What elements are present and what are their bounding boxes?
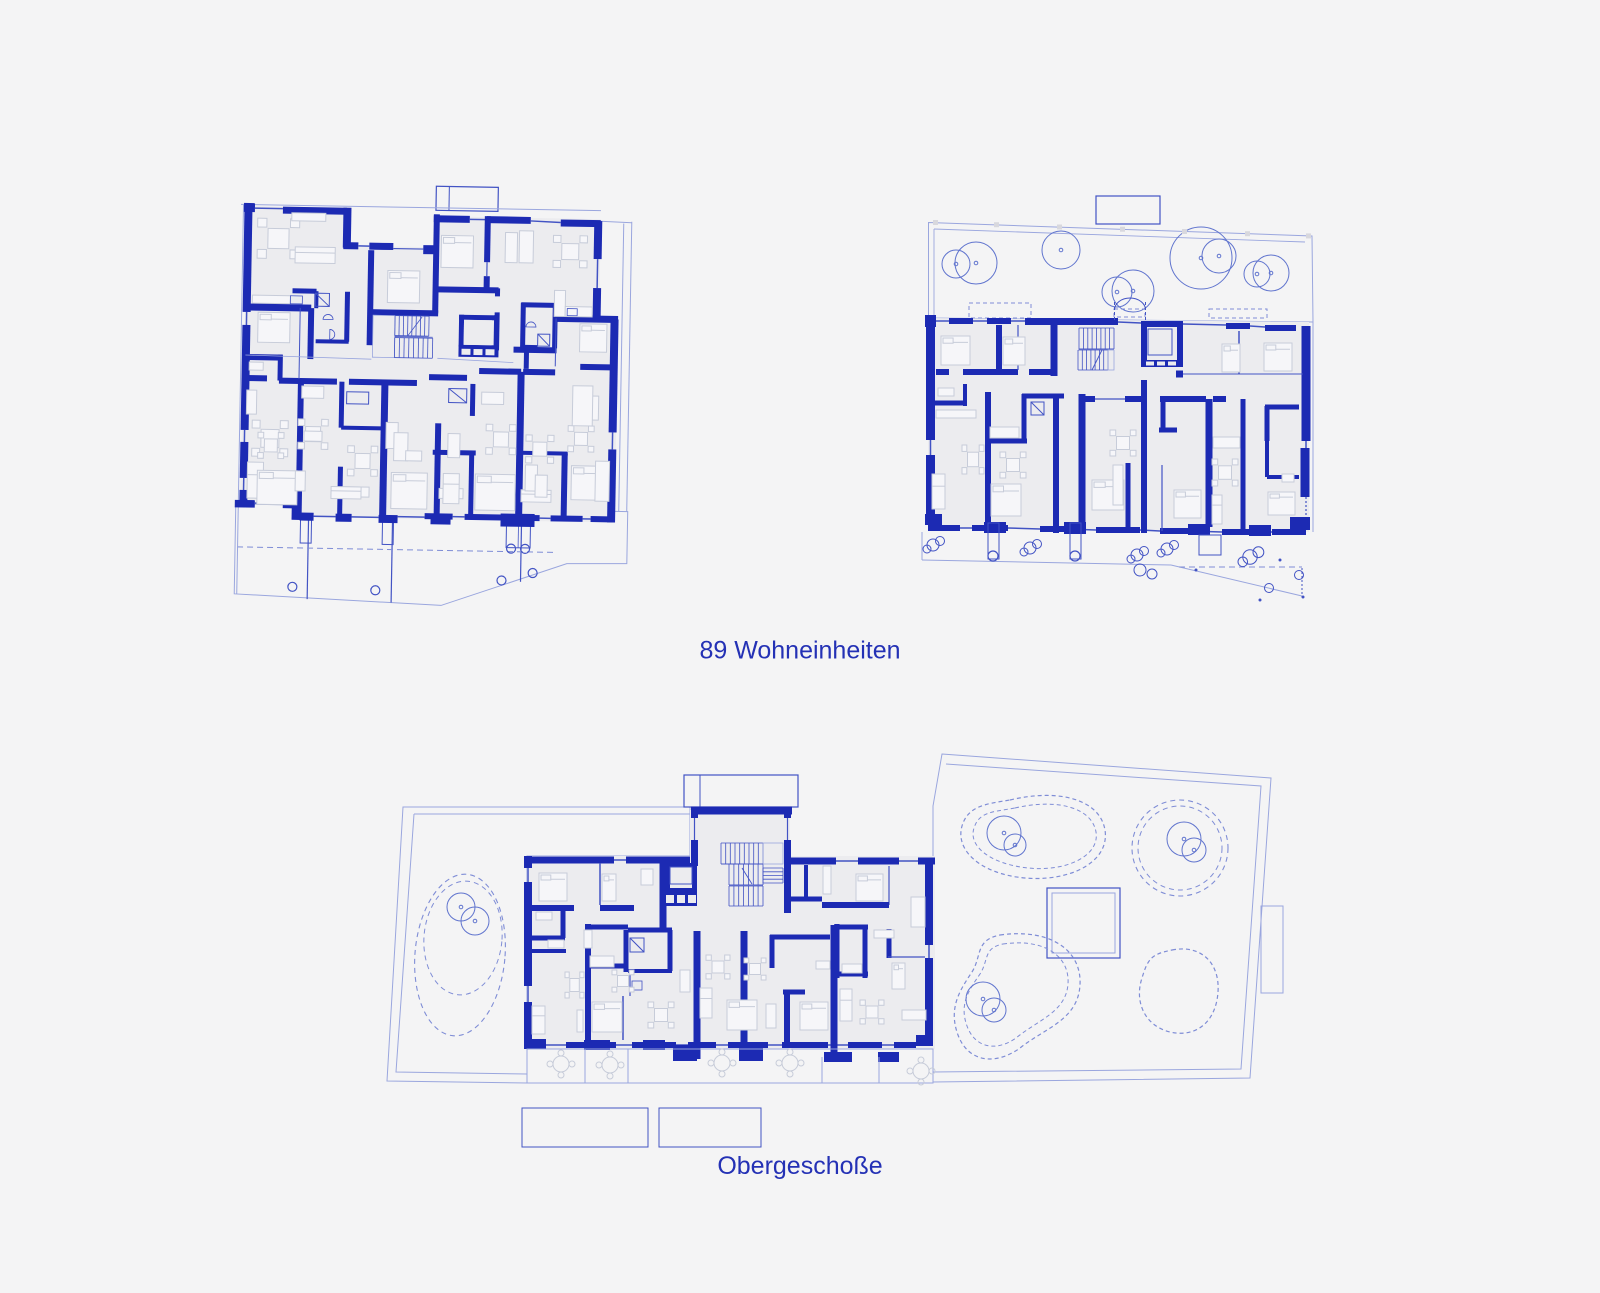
svg-text:89 Wohneinheiten: 89 Wohneinheiten (699, 637, 900, 665)
svg-text:Obergeschoße: Obergeschoße (717, 1152, 882, 1180)
